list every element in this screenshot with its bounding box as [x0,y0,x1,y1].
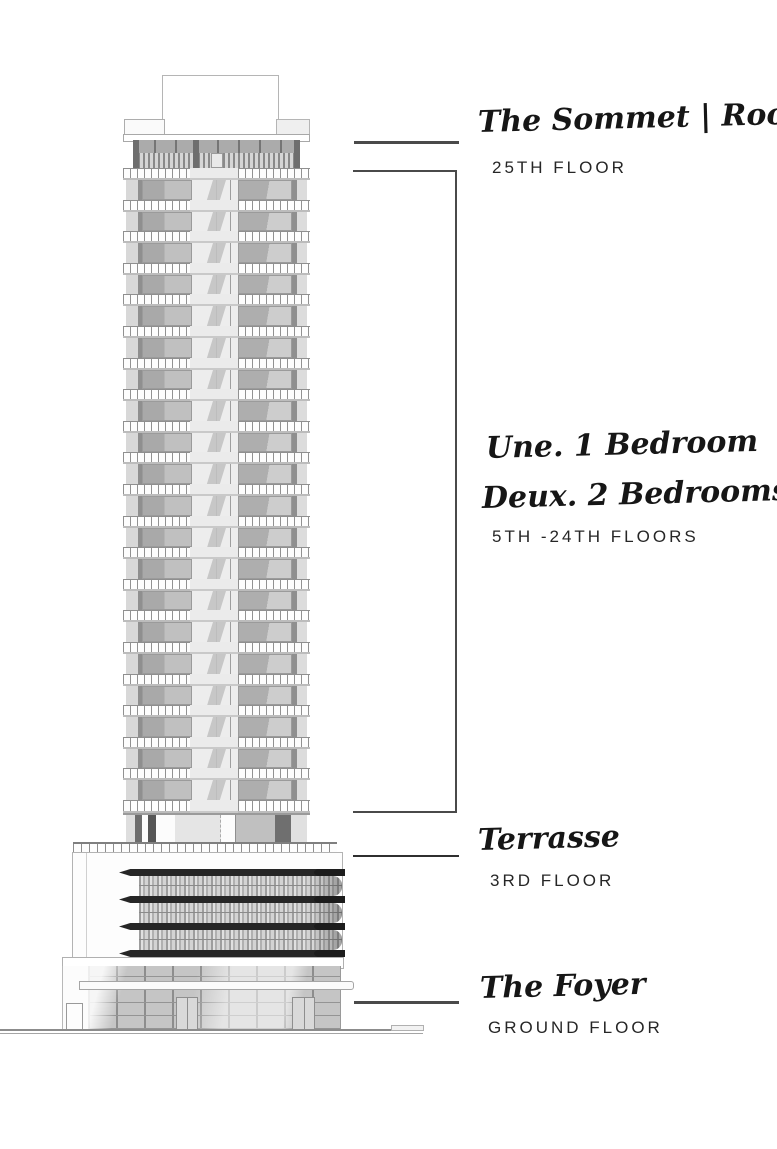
balcony-railing [123,168,310,180]
glass-panel [235,815,277,842]
facade-edge-left [126,180,138,200]
leader-line-terrasse [353,855,459,857]
facade-edge-right [297,433,307,453]
tower-floor [126,263,307,295]
balcony-rail-right [238,168,310,180]
tower-floor [126,452,307,484]
label-3rd-floor: 3RD FLOOR [490,871,614,891]
center-bay-gap [190,705,238,717]
balcony-rail-right [238,674,310,686]
window-left [142,433,192,453]
window-right [238,180,292,200]
balcony-rail-right [238,358,310,370]
facade-edge-right [297,370,307,390]
label-sommet-rooftop: The Sommet | Rooftop [478,96,777,140]
label-5th-24th-floors: 5TH -24TH FLOORS [492,527,699,547]
center-bay-gap [190,263,238,275]
column [148,815,156,842]
balcony-railing [123,200,310,212]
window-left [142,212,192,232]
window-left [142,591,192,611]
center-bay-gap [190,737,238,749]
podium-balcony-band [119,950,345,957]
balcony-rail-left [123,800,190,813]
window-left [142,275,192,295]
facade-edge-right [297,622,307,642]
facade-edge-right [297,559,307,579]
facade-edge-left [126,401,138,421]
podium-balcony-band [119,923,345,930]
ground-line-shadow [0,1033,423,1034]
center-bay-gap [190,642,238,654]
window-left [142,464,192,484]
facade-edge-left [126,464,138,484]
balcony-rail-right [238,389,310,401]
label-25th-floor: 25TH FLOOR [492,158,627,178]
window-right [238,686,292,706]
tower-floor [126,200,307,232]
window-right [238,433,292,453]
balcony-rail-left [123,516,190,528]
window-right [238,370,292,390]
facade-edge-left [126,306,138,326]
balcony-rail-right [238,642,310,654]
tower-floor [126,737,307,769]
entrance-door [292,997,315,1031]
center-bay-gap [190,452,238,464]
balcony-railing [123,326,310,338]
balcony-rail-left [123,642,190,654]
window-left [142,654,192,674]
center-window-bay [192,401,238,421]
balcony-railing [123,737,310,749]
tower-base-railing [123,800,310,815]
facade-edge-right [297,654,307,674]
facade-edge-left [126,496,138,516]
facade-edge-right [297,591,307,611]
podium-slat-screen [139,876,342,896]
window-right [238,780,292,800]
balcony-rail-right [238,610,310,622]
rooftop-column [193,140,199,168]
balcony-rail-left [123,452,190,464]
floor-facade [126,370,307,390]
facade-edge-left [126,370,138,390]
floor-facade [126,433,307,453]
tower-floors [126,168,307,815]
podium-balcony-band [119,896,345,903]
balcony-railing [123,294,310,306]
balcony-rail-right [238,705,310,717]
center-window-bay [192,338,238,358]
tower-floor [126,610,307,642]
center-window-bay [192,749,238,769]
center-window-bay [192,654,238,674]
balcony-railing [123,484,310,496]
balcony-railing [123,768,310,780]
label-ground-floor: GROUND FLOOR [488,1018,663,1038]
balcony-rail-left [123,610,190,622]
window-right [238,306,292,326]
balcony-rail-left [123,421,190,433]
floor-facade [126,559,307,579]
window-left [142,528,192,548]
facade-edge-right [297,686,307,706]
balcony-rail-left [123,231,190,243]
floor-facade [126,180,307,200]
center-window-bay [192,496,238,516]
window-left [142,243,192,263]
floor-facade [126,654,307,674]
balcony-railing [123,358,310,370]
rooftop-floor-band [133,140,300,168]
window-right [238,338,292,358]
service-door [66,1003,83,1031]
label-une-1-bedroom: Une. 1 Bedroom [486,425,759,467]
podium-slat-screen [139,903,342,923]
balcony-rail-right [238,326,310,338]
center-window-bay [192,559,238,579]
center-bay-gap [190,294,238,306]
leader-line-foyer [354,1001,459,1004]
center-bay-gap [190,484,238,496]
facade-edge-left [126,749,138,769]
core-wall [175,815,221,842]
balcony-railing [123,231,310,243]
center-window-bay [192,591,238,611]
balcony-rail-left [123,484,190,496]
entrance-door [176,997,198,1031]
center-window-bay [192,370,238,390]
center-bay-gap [190,768,238,780]
balcony-rail-right [238,547,310,559]
facade-edge-left [126,338,138,358]
facade-edge-right [297,528,307,548]
balcony-rail-right [238,452,310,464]
rooftop-column [294,140,300,168]
fourth-floor-transition [126,815,307,842]
facade-edge-right [297,275,307,295]
facade-edge-right [297,464,307,484]
center-bay-gap [190,389,238,401]
label-deux-2-bedrooms: Deux. 2 Bedrooms [482,474,777,517]
center-bay-gap [190,421,238,433]
wall-panel [126,815,135,842]
center-bay-gap [190,168,238,180]
tower-floor [126,326,307,358]
tower-floor [126,231,307,263]
window-left [142,717,192,737]
elevation-diagram: The Sommet | Rooftop 25TH FLOOR Une. 1 B… [0,0,777,1149]
center-window-bay [192,464,238,484]
balcony-rail-right [238,421,310,433]
facade-edge-right [297,780,307,800]
window-left [142,686,192,706]
center-window-bay [192,717,238,737]
column [275,815,291,842]
facade-edge-right [297,401,307,421]
window-left [142,338,192,358]
balcony-rail-left [123,294,190,306]
label-terrasse: Terrasse [478,820,621,858]
balcony-railing [123,610,310,622]
floor-facade [126,717,307,737]
facade-edge-left [126,622,138,642]
curb-step [391,1025,424,1031]
balcony-rail-left [123,737,190,749]
floor-facade [126,496,307,516]
facade-edge-right [297,496,307,516]
balcony-railing [123,705,310,717]
window-left [142,306,192,326]
center-bay-gap [190,358,238,370]
balcony-rail-left [123,326,190,338]
balcony-rail-right [238,200,310,212]
facade-edge-right [297,749,307,769]
balcony-rail-left [123,547,190,559]
center-bay-gap [190,200,238,212]
bracket-bottom [353,811,457,813]
window-right [238,717,292,737]
tower-floor [126,358,307,390]
balcony-rail-right [238,294,310,306]
balcony-railing [123,579,310,591]
label-the-foyer: The Foyer [480,968,647,1007]
center-bay-gap [190,326,238,338]
tower-floor [126,389,307,421]
window-right [238,464,292,484]
balcony-rail-left [123,263,190,275]
center-window-bay [192,275,238,295]
window-left [142,180,192,200]
window-right [238,559,292,579]
center-window-bay [192,306,238,326]
balcony-rail-left [123,168,190,180]
center-window-bay [192,528,238,548]
bracket-top [353,170,457,172]
balcony-railing [123,547,310,559]
center-window-bay [192,180,238,200]
center-bay-gap [190,516,238,528]
rooftop-column [133,140,139,168]
facade-edge-left [126,243,138,263]
balcony-railing [123,389,310,401]
window-right [238,654,292,674]
balcony-railing [123,421,310,433]
floor-facade [126,780,307,800]
floor-facade [126,275,307,295]
facade-edge-left [126,717,138,737]
mechanical-penthouse [162,75,279,138]
balcony-rail-right [238,484,310,496]
balcony-rail-right [238,800,310,813]
balcony-rail-left [123,358,190,370]
balcony-rail-right [238,263,310,275]
floor-facade [126,243,307,263]
window-right [238,275,292,295]
window-right [238,528,292,548]
wall-panel [291,815,307,842]
balcony-railing [123,263,310,275]
floor-facade [126,686,307,706]
entrance-canopy [79,981,354,990]
window-right [238,496,292,516]
tower-floor [126,642,307,674]
balcony-rail-right [238,768,310,780]
balcony-rail-left [123,768,190,780]
facade-edge-right [297,180,307,200]
floor-facade [126,401,307,421]
tower-floor [126,579,307,611]
tower-floor [126,674,307,706]
podium-balcony-band [119,869,345,876]
window-right [238,401,292,421]
leader-line-rooftop [354,141,459,144]
floor-facade [126,306,307,326]
center-bay-gap [190,674,238,686]
balcony-railing [123,642,310,654]
center-bay-gap [190,610,238,622]
center-window-bay [192,686,238,706]
facade-edge-right [297,306,307,326]
tower-floor [126,421,307,453]
balcony-rail-left [123,579,190,591]
window-left [142,559,192,579]
podium-pier-edge [86,853,87,966]
facade-edge-left [126,433,138,453]
podium-slat-screen [139,930,342,950]
tower-floor [126,516,307,548]
window-left [142,370,192,390]
window-left [142,622,192,642]
facade-edge-right [297,717,307,737]
tower-floor [126,705,307,737]
center-window-bay [192,212,238,232]
center-window-bay [192,780,238,800]
center-bay-gap [190,800,238,813]
column [135,815,142,842]
ground-line [0,1029,423,1031]
facade-edge-left [126,559,138,579]
center-window-bay [192,433,238,453]
facade-edge-left [126,212,138,232]
center-window-bay [192,243,238,263]
balcony-rail-right [238,516,310,528]
facade-edge-left [126,686,138,706]
facade-edge-right [297,212,307,232]
facade-edge-left [126,591,138,611]
balcony-rail-right [238,231,310,243]
podium [72,852,343,967]
window-left [142,496,192,516]
facade-edge-left [126,275,138,295]
facade-edge-left [126,654,138,674]
window-right [238,212,292,232]
bracket-vertical [455,170,457,813]
facade-edge-left [126,780,138,800]
floor-facade [126,212,307,232]
floor-facade [126,622,307,642]
balcony-rail-left [123,200,190,212]
center-bay-gap [190,579,238,591]
rooftop-door [211,153,223,168]
balcony-railing [123,452,310,464]
tower-floor [126,168,307,200]
window-right [238,243,292,263]
facade-edge-right [297,338,307,358]
balcony-railing [123,516,310,528]
tower-floor [126,547,307,579]
facade-edge-left [126,528,138,548]
balcony-rail-left [123,674,190,686]
floor-facade [126,591,307,611]
window-left [142,401,192,421]
center-window-bay [192,622,238,642]
tower-floor [126,294,307,326]
window-right [238,591,292,611]
balcony-railing [123,674,310,686]
balcony-rail-left [123,705,190,717]
window-left [142,749,192,769]
floor-facade [126,338,307,358]
floor-facade [126,528,307,548]
tower-floor [126,484,307,516]
facade-edge-right [297,243,307,263]
window-right [238,622,292,642]
center-bay-gap [190,231,238,243]
window-left [142,780,192,800]
window-right [238,749,292,769]
center-bay-gap [190,547,238,559]
balcony-rail-right [238,579,310,591]
rooftop-fascia [133,140,300,153]
tower-floor [126,768,307,800]
floor-facade [126,749,307,769]
floor-facade [126,464,307,484]
balcony-rail-left [123,389,190,401]
balcony-rail-right [238,737,310,749]
